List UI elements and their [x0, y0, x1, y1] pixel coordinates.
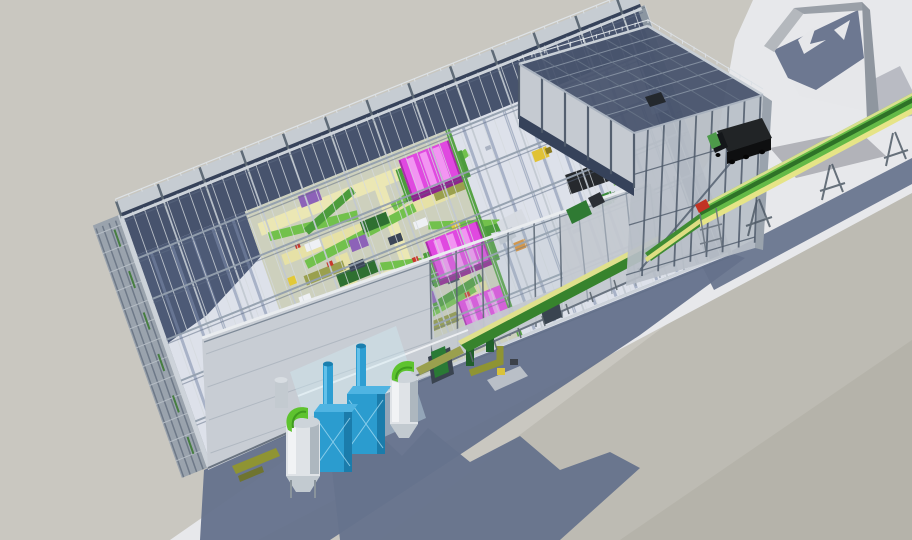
- bag-filter-1: [314, 404, 358, 412]
- equipment-box: [497, 368, 505, 375]
- bag-filter-2: [347, 386, 391, 394]
- render-stage: [0, 0, 912, 540]
- cyclone-tank-1: [288, 424, 296, 474]
- equipment-box: [510, 359, 518, 365]
- cyclone-tank-2: [392, 380, 399, 422]
- truck-wheel: [716, 153, 721, 157]
- plant-3d-viewport[interactable]: [0, 0, 912, 540]
- small-tank: [275, 377, 288, 383]
- truck-wheel: [759, 150, 765, 154]
- cyclone-tank-1: [310, 424, 319, 474]
- truck-wheel: [729, 160, 735, 164]
- filter-stack: [356, 344, 366, 349]
- filter-stack: [323, 362, 333, 367]
- truck-wheel: [743, 155, 749, 159]
- cyclone-tank-2: [410, 380, 418, 422]
- small-tank: [275, 380, 288, 408]
